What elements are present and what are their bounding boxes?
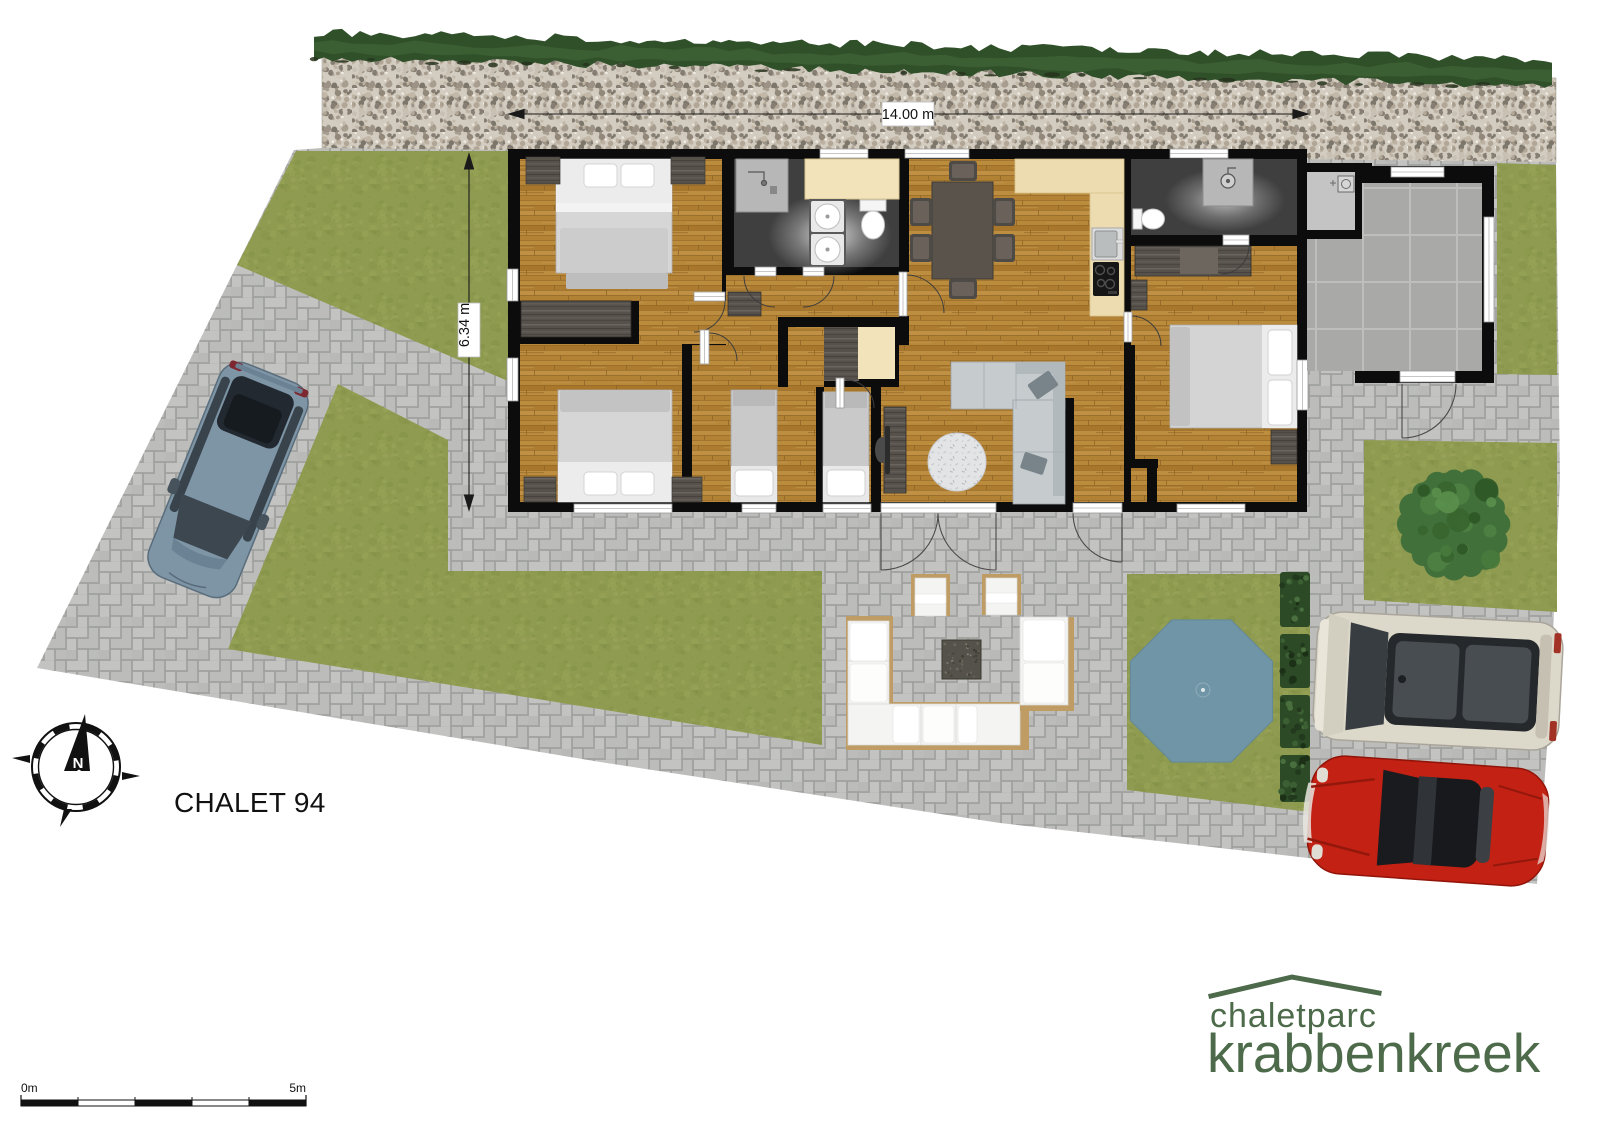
svg-text:N: N xyxy=(73,755,84,772)
svg-text:0m: 0m xyxy=(21,1081,38,1095)
svg-text:14.00 m: 14.00 m xyxy=(882,107,934,123)
svg-text:6.34 m: 6.34 m xyxy=(457,303,473,347)
svg-text:krabbenkreek: krabbenkreek xyxy=(1207,1022,1541,1084)
svg-text:CHALET 94: CHALET 94 xyxy=(174,787,326,818)
svg-text:5m: 5m xyxy=(289,1081,306,1095)
